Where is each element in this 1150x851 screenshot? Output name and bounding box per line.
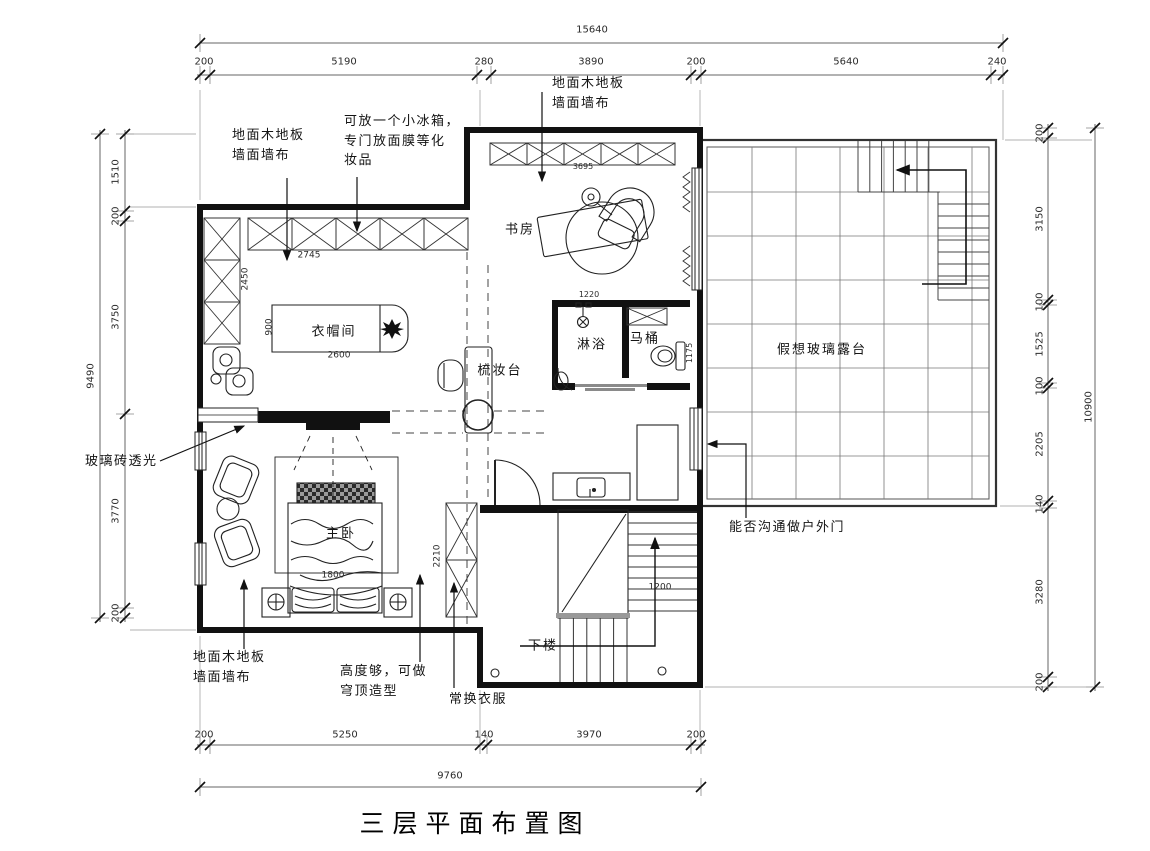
stairwell (491, 510, 697, 682)
room-label-study: 书房 (505, 220, 535, 240)
note-wood-floor-bedroom: 地面木地板 墙面墙布 (193, 648, 266, 687)
dim-int-2745: 2745 (298, 249, 321, 263)
plant-icon (380, 319, 404, 339)
dim-left-3750: 3750 (109, 304, 124, 329)
dim-top-5640: 5640 (833, 55, 858, 70)
dim-right-1525: 1525 (1033, 331, 1048, 356)
dim-right-10900: 10900 (1082, 391, 1097, 423)
curtain-zigzag-icon (683, 172, 690, 286)
dim-bottom-200-r: 200 (686, 728, 705, 743)
dim-bottom-3970: 3970 (576, 728, 601, 743)
vanity-basins (211, 347, 253, 395)
dim-top-240: 240 (987, 55, 1006, 70)
dim-left-3770: 3770 (109, 498, 124, 523)
dim-right-100-a: 100 (1033, 292, 1048, 311)
dim-bottom-200-l: 200 (194, 728, 213, 743)
dim-top-5190: 5190 (331, 55, 356, 70)
dim-top-200-mid: 200 (686, 55, 705, 70)
drawing-title: 三层平面布置图 (359, 804, 590, 840)
dim-int-900: 900 (263, 318, 277, 335)
dim-right-2205: 2205 (1033, 431, 1048, 456)
floorplan-canvas: 书房衣帽间梳妆台淋浴马桶假想玻璃露台主卧下楼地面木地板 墙面墙布可放一个小冰箱，… (0, 0, 1150, 851)
dim-int-2450: 2450 (239, 268, 253, 291)
dim-right-3280: 3280 (1033, 579, 1048, 604)
dim-int-2600: 2600 (328, 349, 351, 363)
shower-head-icon (576, 303, 591, 328)
armchair (211, 453, 262, 506)
dim-int-3695: 3695 (573, 161, 593, 173)
terrace-stairs (858, 141, 989, 300)
note-mini-fridge: 可放一个小冰箱， 专门放面膜等化 妆品 (344, 112, 460, 171)
dim-int-1800: 1800 (322, 569, 345, 583)
dim-int-1175: 1175 (684, 343, 696, 363)
sliding-door (575, 384, 647, 391)
room-label-stairs-down: 下楼 (528, 636, 558, 656)
dim-left-200-bot: 200 (109, 603, 124, 622)
bedroom-door (495, 460, 540, 505)
dim-top-15640: 15640 (576, 23, 608, 38)
dim-top-3890: 3890 (578, 55, 603, 70)
dim-int-2210: 2210 (431, 545, 445, 568)
dim-bottom-9760: 9760 (437, 769, 462, 784)
note-glass-brick: 玻璃砖透光 (85, 452, 158, 472)
room-label-cloakroom: 衣帽间 (311, 322, 356, 342)
note-wood-floor-study: 地面木地板 墙面墙布 (552, 74, 625, 113)
dim-top-200-left: 200 (194, 55, 213, 70)
dim-left-9490: 9490 (84, 363, 99, 388)
floorplan-linework (0, 0, 1150, 851)
dim-right-140: 140 (1033, 494, 1048, 513)
dim-right-200-bot: 200 (1033, 672, 1048, 691)
tv-icon (306, 423, 360, 430)
note-outdoor-door: 能否沟通做户外门 (729, 518, 845, 538)
room-label-terrace: 假想玻璃露台 (777, 340, 867, 360)
dressing-table (438, 347, 493, 433)
bed-headboard (297, 483, 375, 503)
terrace-tile-grid (707, 147, 989, 499)
dim-right-100-b: 100 (1033, 376, 1048, 395)
dim-bottom-5250: 5250 (332, 728, 357, 743)
study-desk (537, 179, 663, 274)
dim-bottom-140: 140 (474, 728, 493, 743)
dim-top-280: 280 (474, 55, 493, 70)
dim-right-3150: 3150 (1033, 206, 1048, 231)
side-table (217, 498, 239, 520)
note-dome-ceiling: 高度够，可做 穹顶造型 (340, 662, 427, 701)
armchair (212, 517, 262, 569)
dim-left-1510: 1510 (109, 159, 124, 184)
note-change-clothes: 常换衣服 (449, 690, 507, 710)
dim-right-200-top: 200 (1033, 123, 1048, 142)
dim-int-1200: 1200 (649, 581, 672, 595)
dim-left-200-top: 200 (109, 206, 124, 225)
room-label-dressing-table: 梳妆台 (477, 361, 522, 381)
room-label-toilet: 马桶 (630, 329, 660, 349)
dim-int-1220: 1220 (579, 289, 599, 301)
room-label-master-bedroom: 主卧 (326, 524, 356, 544)
terrace (700, 140, 996, 506)
bedroom-furniture (211, 423, 412, 617)
corridor-sink (553, 473, 630, 500)
corridor-cabinet (637, 425, 678, 500)
note-wood-floor-top: 地面木地板 墙面墙布 (232, 126, 305, 165)
room-label-shower: 淋浴 (577, 335, 607, 355)
